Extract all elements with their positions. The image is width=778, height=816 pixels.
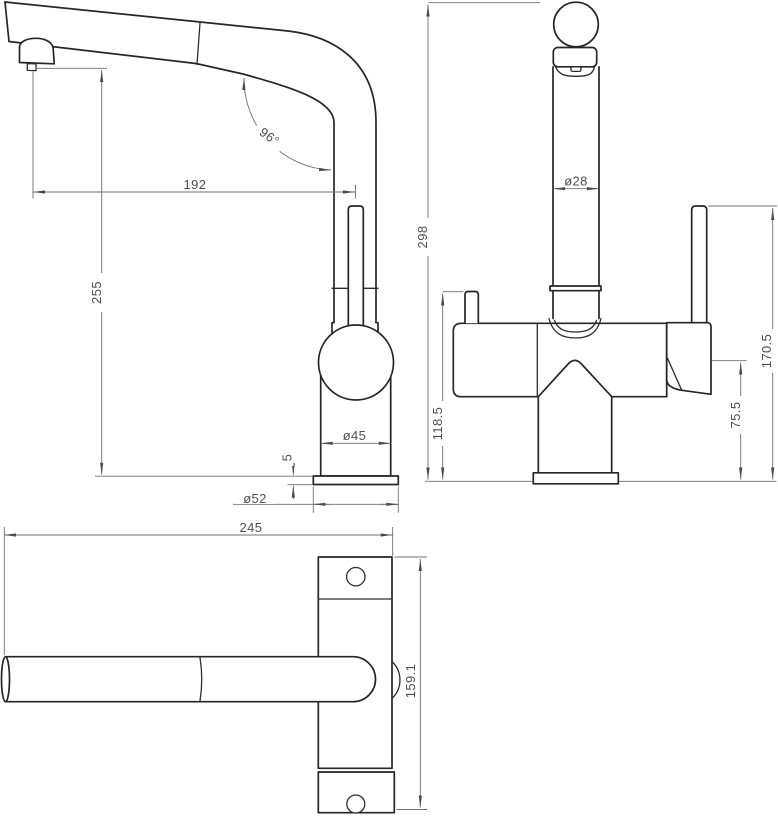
front-view: 298 ø28 118.5 75.5 170.5 bbox=[415, 2, 777, 484]
dim-body-diameter-label: ø45 bbox=[343, 428, 367, 443]
dim-spout-outlet-height-label: 255 bbox=[89, 281, 104, 304]
right-handle-block bbox=[667, 323, 711, 395]
dim-handle-base-height: 75.5 bbox=[712, 361, 747, 480]
dim-handle-base-height-label: 75.5 bbox=[728, 402, 743, 429]
pipe-collar-front bbox=[550, 286, 601, 291]
spray-nozzle bbox=[27, 64, 36, 71]
dim-base-plate-thickness: 5 bbox=[280, 449, 314, 499]
leg-front bbox=[538, 397, 611, 473]
spout-tube-top bbox=[6, 657, 376, 702]
spray-head-divider bbox=[197, 23, 200, 65]
left-handle-lever bbox=[465, 292, 478, 324]
top-handle-knob bbox=[347, 568, 365, 586]
dim-base-diameter: ø52 bbox=[233, 487, 398, 513]
faucet-technical-drawing: 192 255 96° ø45 5 bbox=[0, 0, 778, 816]
aerator-housing bbox=[553, 48, 596, 67]
dim-left-lever-height-label: 118.5 bbox=[430, 407, 445, 441]
ball-joint bbox=[319, 325, 394, 400]
spout-end-ball bbox=[554, 2, 599, 47]
dim-overall-depth-label: 159.1 bbox=[403, 664, 418, 699]
handle-lever-side bbox=[348, 206, 363, 327]
right-handle-lever bbox=[692, 206, 707, 323]
dim-pipe-diameter: ø28 bbox=[553, 174, 599, 189]
dim-handle-lever-height-label: 170.5 bbox=[759, 334, 774, 369]
aerator-tip bbox=[571, 67, 581, 72]
dim-spout-angle: 96° bbox=[244, 78, 331, 170]
technical-drawing-canvas: 192 255 96° ø45 5 bbox=[0, 0, 778, 816]
base-plate-side bbox=[313, 476, 398, 485]
base-plate-front bbox=[533, 473, 618, 484]
side-view: 192 255 96° ø45 5 bbox=[5, 2, 398, 513]
spout-inner-contour bbox=[5, 2, 334, 288]
dim-spout-reach: 192 bbox=[33, 72, 356, 199]
dim-base-plate-thickness-label: 5 bbox=[280, 454, 295, 462]
side-lever-bump bbox=[392, 662, 400, 699]
dim-base-diameter-label: ø52 bbox=[243, 491, 267, 506]
dim-overall-length-label: 245 bbox=[240, 520, 263, 535]
dim-handle-lever-height: 170.5 bbox=[708, 206, 777, 480]
rear-handle-knob bbox=[347, 795, 365, 813]
spout-outer-contour bbox=[5, 2, 376, 288]
top-view: 245 159.1 bbox=[2, 520, 428, 813]
angle-arc bbox=[244, 78, 331, 170]
dim-total-height-label: 298 bbox=[415, 226, 430, 249]
riser-pipe-lower bbox=[553, 291, 599, 319]
dim-pipe-diameter-label: ø28 bbox=[564, 174, 588, 189]
dim-spout-reach-label: 192 bbox=[184, 177, 207, 192]
spray-head-cap bbox=[20, 38, 55, 64]
